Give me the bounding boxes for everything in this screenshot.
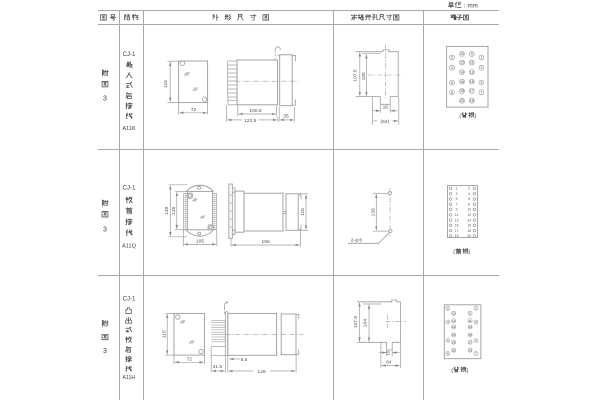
svg-text:10: 10 — [452, 311, 456, 315]
svg-text:72: 72 — [186, 356, 192, 362]
svg-text:7: 7 — [456, 202, 458, 206]
svg-text:3: 3 — [103, 348, 107, 355]
svg-text:17: 17 — [470, 89, 474, 93]
svg-text:18: 18 — [452, 340, 456, 344]
svg-text:16: 16 — [383, 105, 389, 111]
svg-text:31.5: 31.5 — [213, 364, 223, 370]
svg-text:16: 16 — [452, 333, 456, 337]
svg-text:1: 1 — [480, 56, 482, 60]
svg-text:6: 6 — [451, 81, 453, 85]
svg-text:107.5: 107.5 — [353, 316, 359, 329]
svg-text:): ) — [467, 368, 469, 374]
svg-text:9: 9 — [456, 208, 458, 212]
svg-text:8: 8 — [451, 91, 453, 95]
svg-text:4: 4 — [451, 66, 453, 70]
svg-text:115: 115 — [161, 330, 167, 338]
svg-text:15: 15 — [470, 80, 474, 84]
svg-text:A11Q: A11Q — [122, 243, 137, 249]
svg-text:15: 15 — [455, 224, 459, 228]
svg-text:16: 16 — [460, 80, 464, 84]
svg-text:12: 12 — [452, 319, 456, 323]
svg-text:126: 126 — [257, 369, 265, 375]
svg-text:72: 72 — [191, 107, 197, 113]
svg-text:14: 14 — [460, 70, 464, 74]
svg-text:18: 18 — [467, 229, 471, 233]
svg-text:104: 104 — [363, 319, 369, 327]
svg-text:125: 125 — [171, 206, 177, 214]
svg-text:8: 8 — [468, 202, 470, 206]
svg-text:): ) — [469, 250, 471, 256]
svg-text:12: 12 — [467, 213, 471, 217]
svg-text:115: 115 — [300, 208, 306, 216]
svg-text:19: 19 — [455, 234, 459, 238]
svg-text:13: 13 — [470, 70, 474, 74]
svg-text:107.5: 107.5 — [353, 69, 359, 82]
svg-text:10: 10 — [467, 208, 471, 212]
svg-text:13: 13 — [468, 325, 472, 329]
svg-text:10: 10 — [460, 52, 464, 56]
svg-text:3: 3 — [480, 66, 482, 70]
svg-text:9: 9 — [471, 52, 473, 56]
svg-text:149: 149 — [164, 206, 170, 214]
svg-text:2: 2 — [451, 56, 453, 60]
svg-text:11: 11 — [470, 61, 474, 65]
svg-text:19: 19 — [468, 348, 472, 352]
svg-text:20: 20 — [467, 234, 471, 238]
svg-text:156: 156 — [262, 239, 270, 245]
svg-text:CJ-1: CJ-1 — [123, 296, 136, 303]
svg-text:(: ( — [453, 250, 455, 256]
svg-text:3: 3 — [103, 95, 107, 102]
svg-text:5: 5 — [359, 237, 362, 243]
svg-text:φ: φ — [355, 238, 358, 243]
svg-text:105: 105 — [196, 239, 204, 245]
svg-text:100.5: 100.5 — [249, 108, 262, 114]
svg-text:12: 12 — [460, 61, 464, 65]
svg-text:7: 7 — [480, 91, 482, 95]
svg-text:(: ( — [451, 368, 453, 374]
svg-text:6: 6 — [468, 197, 470, 201]
svg-text:17: 17 — [468, 340, 472, 344]
svg-text:16: 16 — [386, 350, 391, 355]
svg-text:1: 1 — [456, 187, 458, 191]
svg-text:35: 35 — [283, 113, 289, 119]
svg-text:3: 3 — [103, 227, 107, 234]
svg-text:18: 18 — [460, 89, 464, 93]
svg-text:20: 20 — [452, 348, 456, 352]
svg-text:13: 13 — [455, 218, 459, 222]
svg-text:A11H: A11H — [123, 375, 136, 381]
svg-text:122.5: 122.5 — [244, 118, 257, 124]
svg-text:2: 2 — [468, 187, 470, 191]
svg-text:15: 15 — [468, 333, 472, 337]
svg-text:11: 11 — [469, 319, 472, 323]
svg-text:64: 64 — [386, 360, 392, 366]
svg-text:(: ( — [459, 113, 461, 119]
svg-text:CJ-1: CJ-1 — [123, 51, 136, 58]
svg-text:20: 20 — [460, 99, 464, 103]
svg-text:16: 16 — [467, 224, 471, 228]
svg-text:115: 115 — [163, 80, 169, 88]
svg-text:14: 14 — [452, 325, 456, 329]
svg-text:5: 5 — [480, 81, 482, 85]
svg-text::: : — [463, 2, 465, 9]
svg-text:4: 4 — [468, 192, 470, 196]
svg-text:): ) — [475, 113, 477, 119]
svg-text:CJ-1: CJ-1 — [123, 185, 136, 192]
svg-text:14: 14 — [467, 218, 471, 222]
svg-text:3: 3 — [456, 192, 458, 196]
svg-text:19: 19 — [470, 99, 474, 103]
svg-text:11: 11 — [455, 213, 459, 217]
svg-text:(64): (64) — [380, 119, 389, 125]
svg-text:105: 105 — [361, 72, 367, 80]
svg-text:A11K: A11K — [122, 126, 136, 132]
svg-text:5: 5 — [456, 197, 458, 201]
svg-text:133: 133 — [370, 208, 376, 216]
svg-text:17: 17 — [455, 229, 459, 233]
svg-text:9.5: 9.5 — [241, 357, 248, 363]
svg-text:mm: mm — [467, 2, 477, 9]
